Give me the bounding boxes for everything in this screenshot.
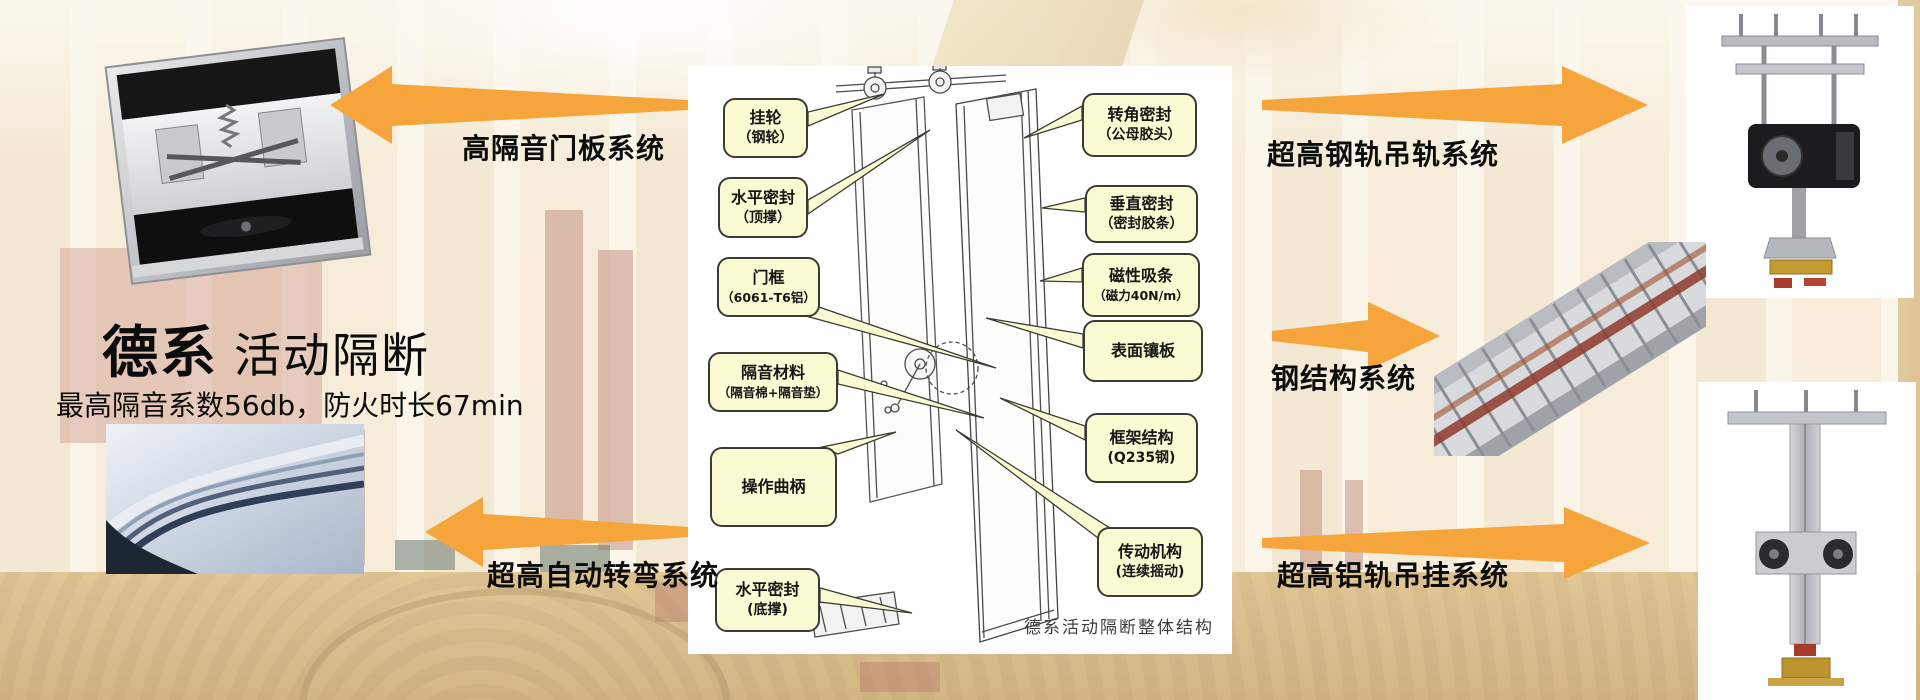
callout-subtext: （公母胶头） (1098, 126, 1182, 146)
callout-text: 隔音材料 (741, 362, 805, 384)
callout-surface-panel: 表面镶板 (1083, 320, 1203, 382)
callout-text: 水平密封 (731, 187, 795, 209)
callout-subtext: （密封胶条） (1100, 215, 1184, 235)
callout-text: 磁性吸条 (1109, 265, 1173, 287)
callout-text: 门框 (752, 267, 784, 289)
photo-steel-rail-trolley (1686, 6, 1914, 298)
callout-text: 表面镶板 (1111, 340, 1175, 362)
callout-hanging-wheel: 挂轮 （钢轮） (723, 98, 808, 158)
callout-magnetic-strip: 磁性吸条 （磁力40N/m） (1082, 253, 1200, 317)
callout-subtext: (底撑) (747, 601, 788, 621)
callout-subtext: （隔音棉+隔音垫） (718, 384, 828, 402)
callout-subtext: （磁力40N/m） (1093, 287, 1188, 305)
callout-horizontal-seal-top: 水平密封 （顶撑） (718, 177, 808, 238)
label-steel-structure-system: 钢结构系统 (1271, 357, 1416, 397)
callout-operating-crank: 操作曲柄 (710, 447, 837, 527)
callout-subtext: （6061-T6铝） (721, 289, 816, 307)
steel-structure-image (1434, 242, 1706, 456)
callout-subtext: （钢轮） (738, 129, 794, 149)
label-auto-turn-system: 超高自动转弯系统 (487, 554, 719, 594)
partition-structure-diagram: 挂轮 （钢轮） 水平密封 （顶撑） 门框 （6061-T6铝） 隔音材料 （隔音… (688, 66, 1232, 654)
callout-subtext: (Q235钢) (1108, 449, 1176, 469)
callout-sound-insulation: 隔音材料 （隔音棉+隔音垫） (708, 352, 838, 412)
callout-frame-structure: 框架结构 (Q235钢) (1085, 413, 1198, 483)
curved-track-image (106, 424, 364, 574)
callout-transmission: 传动机构 (连续摇动) (1097, 527, 1203, 597)
aluminum-rail-trolley-image (1698, 382, 1916, 700)
photo-aluminum-rail-trolley (1698, 382, 1916, 700)
product-subtitle: 最高隔音系数56db，防火时长67min (56, 384, 524, 424)
callout-corner-seal: 转角密封 （公母胶头） (1082, 93, 1197, 157)
callout-text: 转角密封 (1107, 104, 1171, 126)
title-series: 德系 (102, 321, 218, 386)
callout-text: 传动机构 (1118, 541, 1182, 563)
callout-text: 操作曲柄 (741, 476, 805, 498)
product-title: 德系活动隔断 (102, 308, 430, 389)
steel-rail-trolley-image (1686, 6, 1914, 298)
infographic-poster: 德系活动隔断 最高隔音系数56db，防火时长67min (0, 0, 1920, 700)
diagram-caption: 德系活动隔断整体结构 (1024, 613, 1214, 638)
photo-steel-structure (1434, 242, 1706, 456)
photo-curved-track-product (106, 424, 364, 574)
callout-subtext: (连续摇动) (1116, 563, 1185, 583)
callout-text: 框架结构 (1109, 427, 1173, 449)
callout-door-frame: 门框 （6061-T6铝） (717, 257, 820, 317)
callout-vertical-seal: 垂直密封 （密封胶条） (1085, 185, 1198, 243)
label-steel-rail-system: 超高钢轨吊轨系统 (1267, 133, 1499, 173)
label-aluminum-rail-system: 超高铝轨吊挂系统 (1277, 554, 1509, 594)
callout-subtext: （顶撑） (735, 209, 791, 229)
callout-text: 垂直密封 (1109, 193, 1173, 215)
callout-text: 水平密封 (735, 579, 799, 601)
label-door-panel-system: 高隔音门板系统 (462, 127, 665, 167)
callout-text: 挂轮 (749, 107, 781, 129)
callout-horizontal-seal-bottom: 水平密封 (底撑) (715, 568, 820, 632)
title-product: 活动隔断 (234, 329, 430, 384)
